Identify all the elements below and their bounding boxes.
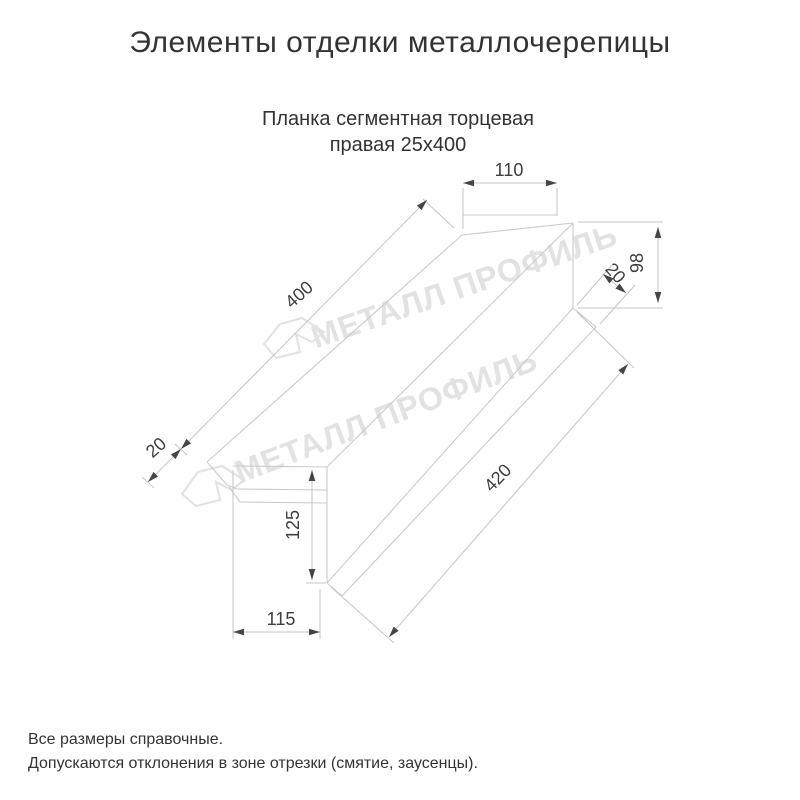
footnote-line2: Допускаются отклонения в зоне отрезки (с… bbox=[28, 752, 478, 776]
dim-bottom-offset-width: 115 bbox=[267, 609, 296, 629]
footnotes: Все размеры справочные. Допускаются откл… bbox=[28, 728, 478, 776]
dim-top-edge-length: 400 bbox=[281, 277, 317, 312]
technical-drawing: МЕТАЛЛ ПРОФИЛЬ МЕТАЛЛ ПРОФИЛЬ bbox=[0, 0, 800, 800]
watermark-upper: МЕТАЛЛ ПРОФИЛЬ bbox=[264, 216, 622, 358]
watermark-text: МЕТАЛЛ ПРОФИЛЬ bbox=[307, 216, 623, 355]
dim-right-hem-fold: 20 bbox=[601, 259, 629, 287]
dim-right-end-height: 98 bbox=[627, 253, 647, 273]
footnote-line1: Все размеры справочные. bbox=[28, 728, 478, 752]
dim-left-end-height: 125 bbox=[283, 510, 303, 540]
dim-bottom-edge-length: 420 bbox=[480, 460, 515, 496]
drawing-page: Элементы отделки металлочерепицы Планка … bbox=[0, 0, 800, 800]
dim-top-flange-width: 110 bbox=[495, 160, 524, 180]
dim-left-end-fold: 20 bbox=[142, 433, 170, 461]
